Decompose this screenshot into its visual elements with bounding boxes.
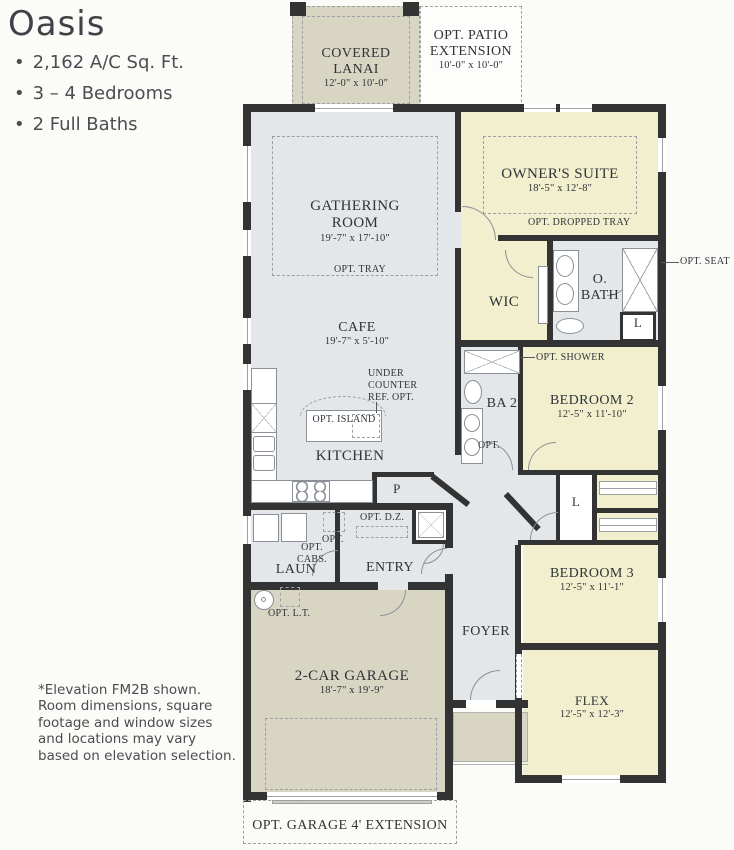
entry-label: ENTRY — [358, 560, 422, 576]
wall — [597, 508, 660, 513]
room-name: COVERED LANAI — [300, 46, 412, 78]
room-name: BEDROOM 3 — [546, 566, 638, 582]
opt-equipment-box — [280, 587, 300, 607]
room-name: ENTRY — [358, 560, 422, 576]
obath-label: O. BATH — [577, 272, 623, 304]
spec-sqft-text: 2,162 A/C Sq. Ft. — [33, 52, 184, 73]
garage-door-opening — [267, 792, 437, 800]
room-name: FLEX — [546, 694, 638, 709]
room-dims: 12'-5" x 11'-10" — [546, 409, 638, 421]
flex-label: FLEX 12'-5" x 12'-3" — [546, 694, 638, 721]
window — [658, 578, 666, 622]
window — [243, 146, 251, 202]
owners-suite-label: OWNER'S SUITE 18'-5" x 12'-8" — [500, 166, 620, 195]
shower — [622, 248, 658, 312]
room-name: P — [386, 482, 408, 497]
window — [243, 516, 251, 544]
pantry-label: P — [386, 482, 408, 497]
washer — [253, 514, 279, 542]
wall — [592, 472, 597, 542]
window — [243, 364, 251, 390]
wall — [518, 540, 666, 545]
room-name: BEDROOM 2 — [546, 393, 638, 409]
room-name: L — [562, 495, 590, 510]
bedroom3-label: BEDROOM 3 12'-5" x 11'-1" — [546, 566, 638, 594]
stove — [292, 481, 330, 502]
cafe-label: CAFE 19'-7" x 5'-10" — [317, 320, 397, 348]
floor-plan-page: Oasis •2,162 A/C Sq. Ft. •3 – 4 Bedrooms… — [0, 0, 734, 850]
wall — [658, 104, 666, 783]
lanai-label: COVERED LANAI 12'-0" x 10'-0" — [300, 46, 412, 90]
garage-apron-dashed — [265, 718, 437, 790]
wall — [455, 112, 461, 212]
opt-door-opening — [516, 654, 522, 698]
plan-title: Oasis — [8, 4, 105, 44]
window — [658, 386, 666, 430]
opt-dropped-tray-label: OPT. DROPPED TRAY — [528, 217, 638, 229]
room-name: BA 2 — [482, 396, 522, 412]
dryer — [281, 513, 307, 542]
room-name: GATHERING ROOM — [285, 198, 425, 233]
window — [658, 138, 666, 172]
room-dims: 12'-5" x 12'-3" — [546, 709, 638, 721]
wic-label: WIC — [478, 294, 530, 311]
spec-bedrooms-text: 3 – 4 Bedrooms — [33, 83, 173, 104]
sliding-door — [315, 104, 393, 112]
wall — [372, 472, 434, 477]
bullet-dot: • — [14, 114, 25, 135]
gathering-label: GATHERING ROOM 19'-7" x 17'-10" — [285, 198, 425, 245]
kitchen-sink — [253, 455, 275, 471]
room-name: OPT. PATIO EXTENSION — [425, 28, 517, 60]
spec-sqft: •2,162 A/C Sq. Ft. — [14, 52, 184, 73]
room-name: O. BATH — [577, 272, 623, 304]
garage-extension-label: OPT. GARAGE 4' EXTENSION — [248, 818, 452, 834]
spec-baths: •2 Full Baths — [14, 114, 138, 135]
front-door-opening — [466, 700, 496, 708]
opt-seat-label: OPT. SEAT — [680, 256, 734, 268]
foyer-label: FOYER — [456, 624, 516, 640]
linen2-label: L — [562, 495, 590, 510]
window — [524, 104, 556, 112]
patio-label: OPT. PATIO EXTENSION 10'-0" x 10'-0" — [425, 28, 517, 72]
garage-label: 2-CAR GARAGE 18'-7" x 19'-9" — [294, 668, 410, 697]
sink — [556, 255, 574, 277]
toilet — [464, 380, 482, 404]
room-dims: 12'-0" x 10'-0" — [300, 78, 412, 90]
room-name: CAFE — [317, 320, 397, 336]
opt-appliance-label: OPT. — [322, 534, 348, 546]
opt-lt-label: OPT. L.T. — [268, 608, 320, 620]
toilet — [556, 318, 584, 334]
tub — [464, 350, 520, 374]
spec-bedrooms: •3 – 4 Bedrooms — [14, 83, 173, 104]
room-dims: 18'-7" x 19'-9" — [294, 685, 410, 697]
leader-line — [661, 262, 679, 263]
opt-appliance-box — [323, 512, 345, 532]
room-dims: 19'-7" x 17'-10" — [285, 233, 425, 245]
wall — [498, 235, 660, 241]
room-dims: 18'-5" x 12'-8" — [500, 183, 620, 195]
room-dims: 12'-5" x 11'-1" — [546, 582, 638, 594]
window — [243, 230, 251, 256]
wall — [243, 104, 251, 802]
opt-shower-label: OPT. SHOWER — [536, 352, 614, 364]
opt-dz-label: OPT. D.Z. — [360, 512, 410, 524]
room-dims: 19'-7" x 5'-10" — [317, 336, 397, 348]
window — [560, 104, 592, 112]
entry-closet-x — [418, 512, 444, 538]
sink — [464, 414, 480, 432]
bedroom2-label: BEDROOM 2 12'-5" x 11'-10" — [546, 393, 638, 421]
room-dims: 10'-0" x 10'-0" — [425, 60, 517, 72]
wall — [515, 643, 666, 650]
elevation-footnote: *Elevation FM2B shown. Room dimensions, … — [38, 682, 240, 764]
obath-linen-label: L — [624, 316, 652, 331]
room-name: KITCHEN — [308, 448, 392, 465]
sink — [556, 283, 574, 305]
wic-room — [461, 241, 547, 342]
kitchen-label: KITCHEN — [308, 448, 392, 465]
option-name: OPT. GARAGE 4' EXTENSION — [248, 818, 452, 834]
room-name: 2-CAR GARAGE — [294, 668, 410, 685]
ba2-opt-label: OPT. — [478, 440, 508, 452]
room-name: OWNER'S SUITE — [500, 166, 620, 183]
closet-rod — [599, 481, 657, 495]
garage-entry-opening — [378, 582, 408, 590]
kitchen-sink — [253, 436, 275, 452]
drop-zone-bench — [356, 526, 408, 538]
wic-shelf — [538, 266, 548, 324]
opt-tray-label: OPT. TRAY — [330, 264, 390, 276]
room-name: L — [624, 316, 652, 331]
closet-rod — [599, 518, 657, 532]
corner-cabinet — [251, 403, 277, 433]
bullet-dot: • — [14, 52, 25, 73]
bullet-dot: • — [14, 83, 25, 104]
window — [562, 775, 620, 783]
lanai-post — [403, 2, 419, 16]
opt-island-label: OPT. ISLAND — [312, 414, 376, 426]
lanai-post — [290, 2, 306, 16]
room-name: FOYER — [456, 624, 516, 640]
ba2-label: BA 2 — [482, 396, 522, 412]
wall — [243, 582, 453, 590]
window — [243, 318, 251, 344]
under-counter-ref-label: UNDER COUNTER REF. OPT. — [368, 368, 432, 404]
laundry-tub-drain — [261, 597, 266, 602]
spec-baths-text: 2 Full Baths — [33, 114, 138, 135]
leader-line — [521, 357, 535, 358]
room-name: WIC — [478, 294, 530, 311]
